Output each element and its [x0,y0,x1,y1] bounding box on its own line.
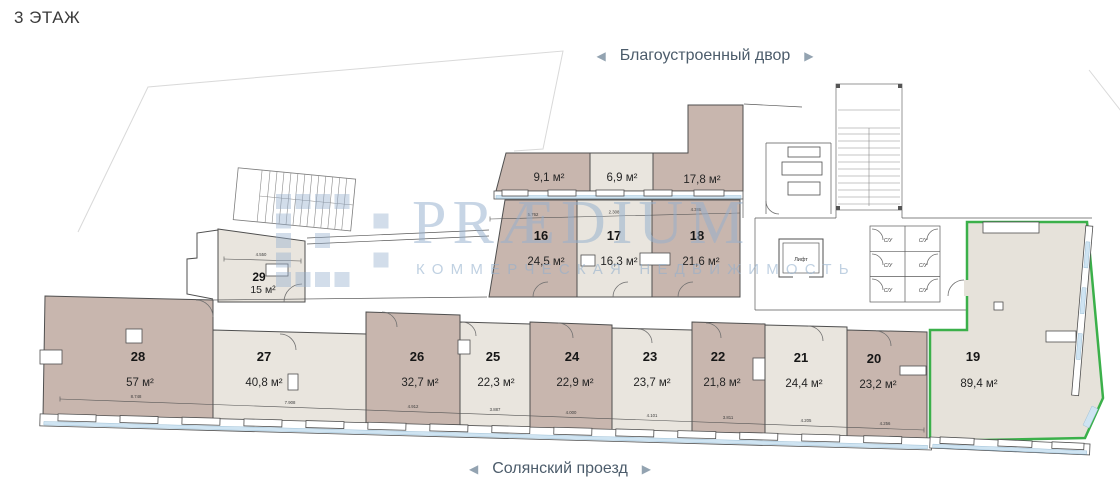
room-27: 27 40,8 м² [213,330,366,426]
svg-text:17,8 м²: 17,8 м² [683,174,720,186]
right-staircase [836,84,902,210]
svg-text:40,8 м²: 40,8 м² [245,377,282,389]
svg-text:7.908: 7.908 [285,400,296,405]
proezd-street-label: ◀ Солянский проезд ▶ [469,460,651,478]
svg-text:С/У: С/У [919,288,928,294]
svg-text:4.912: 4.912 [408,404,419,409]
floor-plan-canvas: 9,1 м² 6,9 м² 17,8 м² 16 24,5 м² [0,0,1120,498]
room-17: 17 16,3 м² [577,200,652,297]
svg-text:22,3 м²: 22,3 м² [477,377,514,389]
svg-text:4.385: 4.385 [691,207,702,212]
svg-text:20: 20 [867,351,881,366]
vent-shafts [766,143,831,214]
svg-text:4.205: 4.205 [801,418,812,423]
svg-text:23,7 м²: 23,7 м² [633,377,670,389]
svg-text:26: 26 [410,349,424,364]
svg-text:С/У: С/У [919,238,928,244]
svg-text:22,9 м²: 22,9 м² [556,377,593,389]
svg-text:89,4 м²: 89,4 м² [960,378,997,390]
svg-text:22: 22 [711,349,725,364]
svg-text:23: 23 [643,349,657,364]
svg-text:21,8 м²: 21,8 м² [703,377,740,389]
svg-text:32,7 м²: 32,7 м² [401,377,438,389]
svg-text:4.256: 4.256 [880,421,891,426]
elevator: Лифт [779,239,823,279]
svg-text:6,9 м²: 6,9 м² [607,172,638,184]
svg-text:С/У: С/У [919,263,928,269]
room-17-8: 17,8 м² [653,105,743,191]
svg-text:С/У: С/У [884,288,893,294]
svg-text:28: 28 [131,349,145,364]
svg-text:57 м²: 57 м² [126,377,154,389]
left-outer-wall [187,230,218,299]
svg-text:29: 29 [252,270,266,284]
room-9-1: 9,1 м² [496,153,590,191]
svg-text:24,4 м²: 24,4 м² [785,378,822,390]
prev-arrow-icon[interactable]: ◀ [596,49,605,63]
svg-text:15 м²: 15 м² [250,284,276,296]
svg-text:18: 18 [690,228,704,243]
svg-text:17: 17 [607,228,621,243]
street-name: Солянский проезд [492,460,628,478]
svg-text:Лифт: Лифт [794,257,808,263]
svg-text:19: 19 [966,349,980,364]
svg-text:4.550: 4.550 [256,252,267,257]
svg-text:16: 16 [534,228,548,243]
floor-plan-page: 3 ЭТАЖ ◀ Благоустроенный двор ▶ 9,1 м² 6… [0,0,1120,498]
svg-text:21,6 м²: 21,6 м² [682,256,719,268]
svg-text:24: 24 [565,349,580,364]
street-name: Благоустроенный двор [620,47,791,65]
next-arrow-icon[interactable]: ▶ [642,462,651,476]
svg-text:8.748: 8.748 [131,394,142,399]
next-arrow-icon[interactable]: ▶ [804,49,813,63]
svg-text:25: 25 [486,349,500,364]
room-6-9: 6,9 м² [590,153,653,191]
svg-text:4.101: 4.101 [647,413,658,418]
svg-text:С/У: С/У [884,263,893,269]
svg-text:16,3 м²: 16,3 м² [600,256,637,268]
room-19-highlighted: 19 89,4 м² [930,222,1103,441]
svg-text:3.887: 3.887 [490,407,501,412]
room-29: 29 15 м² [218,229,305,302]
floor-title: 3 ЭТАЖ [14,8,80,28]
svg-text:21: 21 [794,350,808,365]
room-28: 28 57 м² [40,296,213,422]
svg-text:27: 27 [257,349,271,364]
top-window-band [494,190,743,199]
left-staircase [233,168,355,231]
svg-text:23,2 м²: 23,2 м² [859,379,896,391]
courtyard-street-label: ◀ Благоустроенный двор ▶ [596,47,813,65]
svg-text:2.308: 2.308 [609,210,620,215]
svg-text:С/У: С/У [884,238,893,244]
svg-text:3.811: 3.811 [723,415,734,420]
svg-text:9,1 м²: 9,1 м² [534,172,565,184]
svg-text:5.762: 5.762 [528,212,539,217]
svg-text:24,5 м²: 24,5 м² [527,256,564,268]
prev-arrow-icon[interactable]: ◀ [469,462,478,476]
svg-text:4.000: 4.000 [566,410,577,415]
wc-block: С/У С/У С/У С/У С/У С/У [870,226,940,302]
